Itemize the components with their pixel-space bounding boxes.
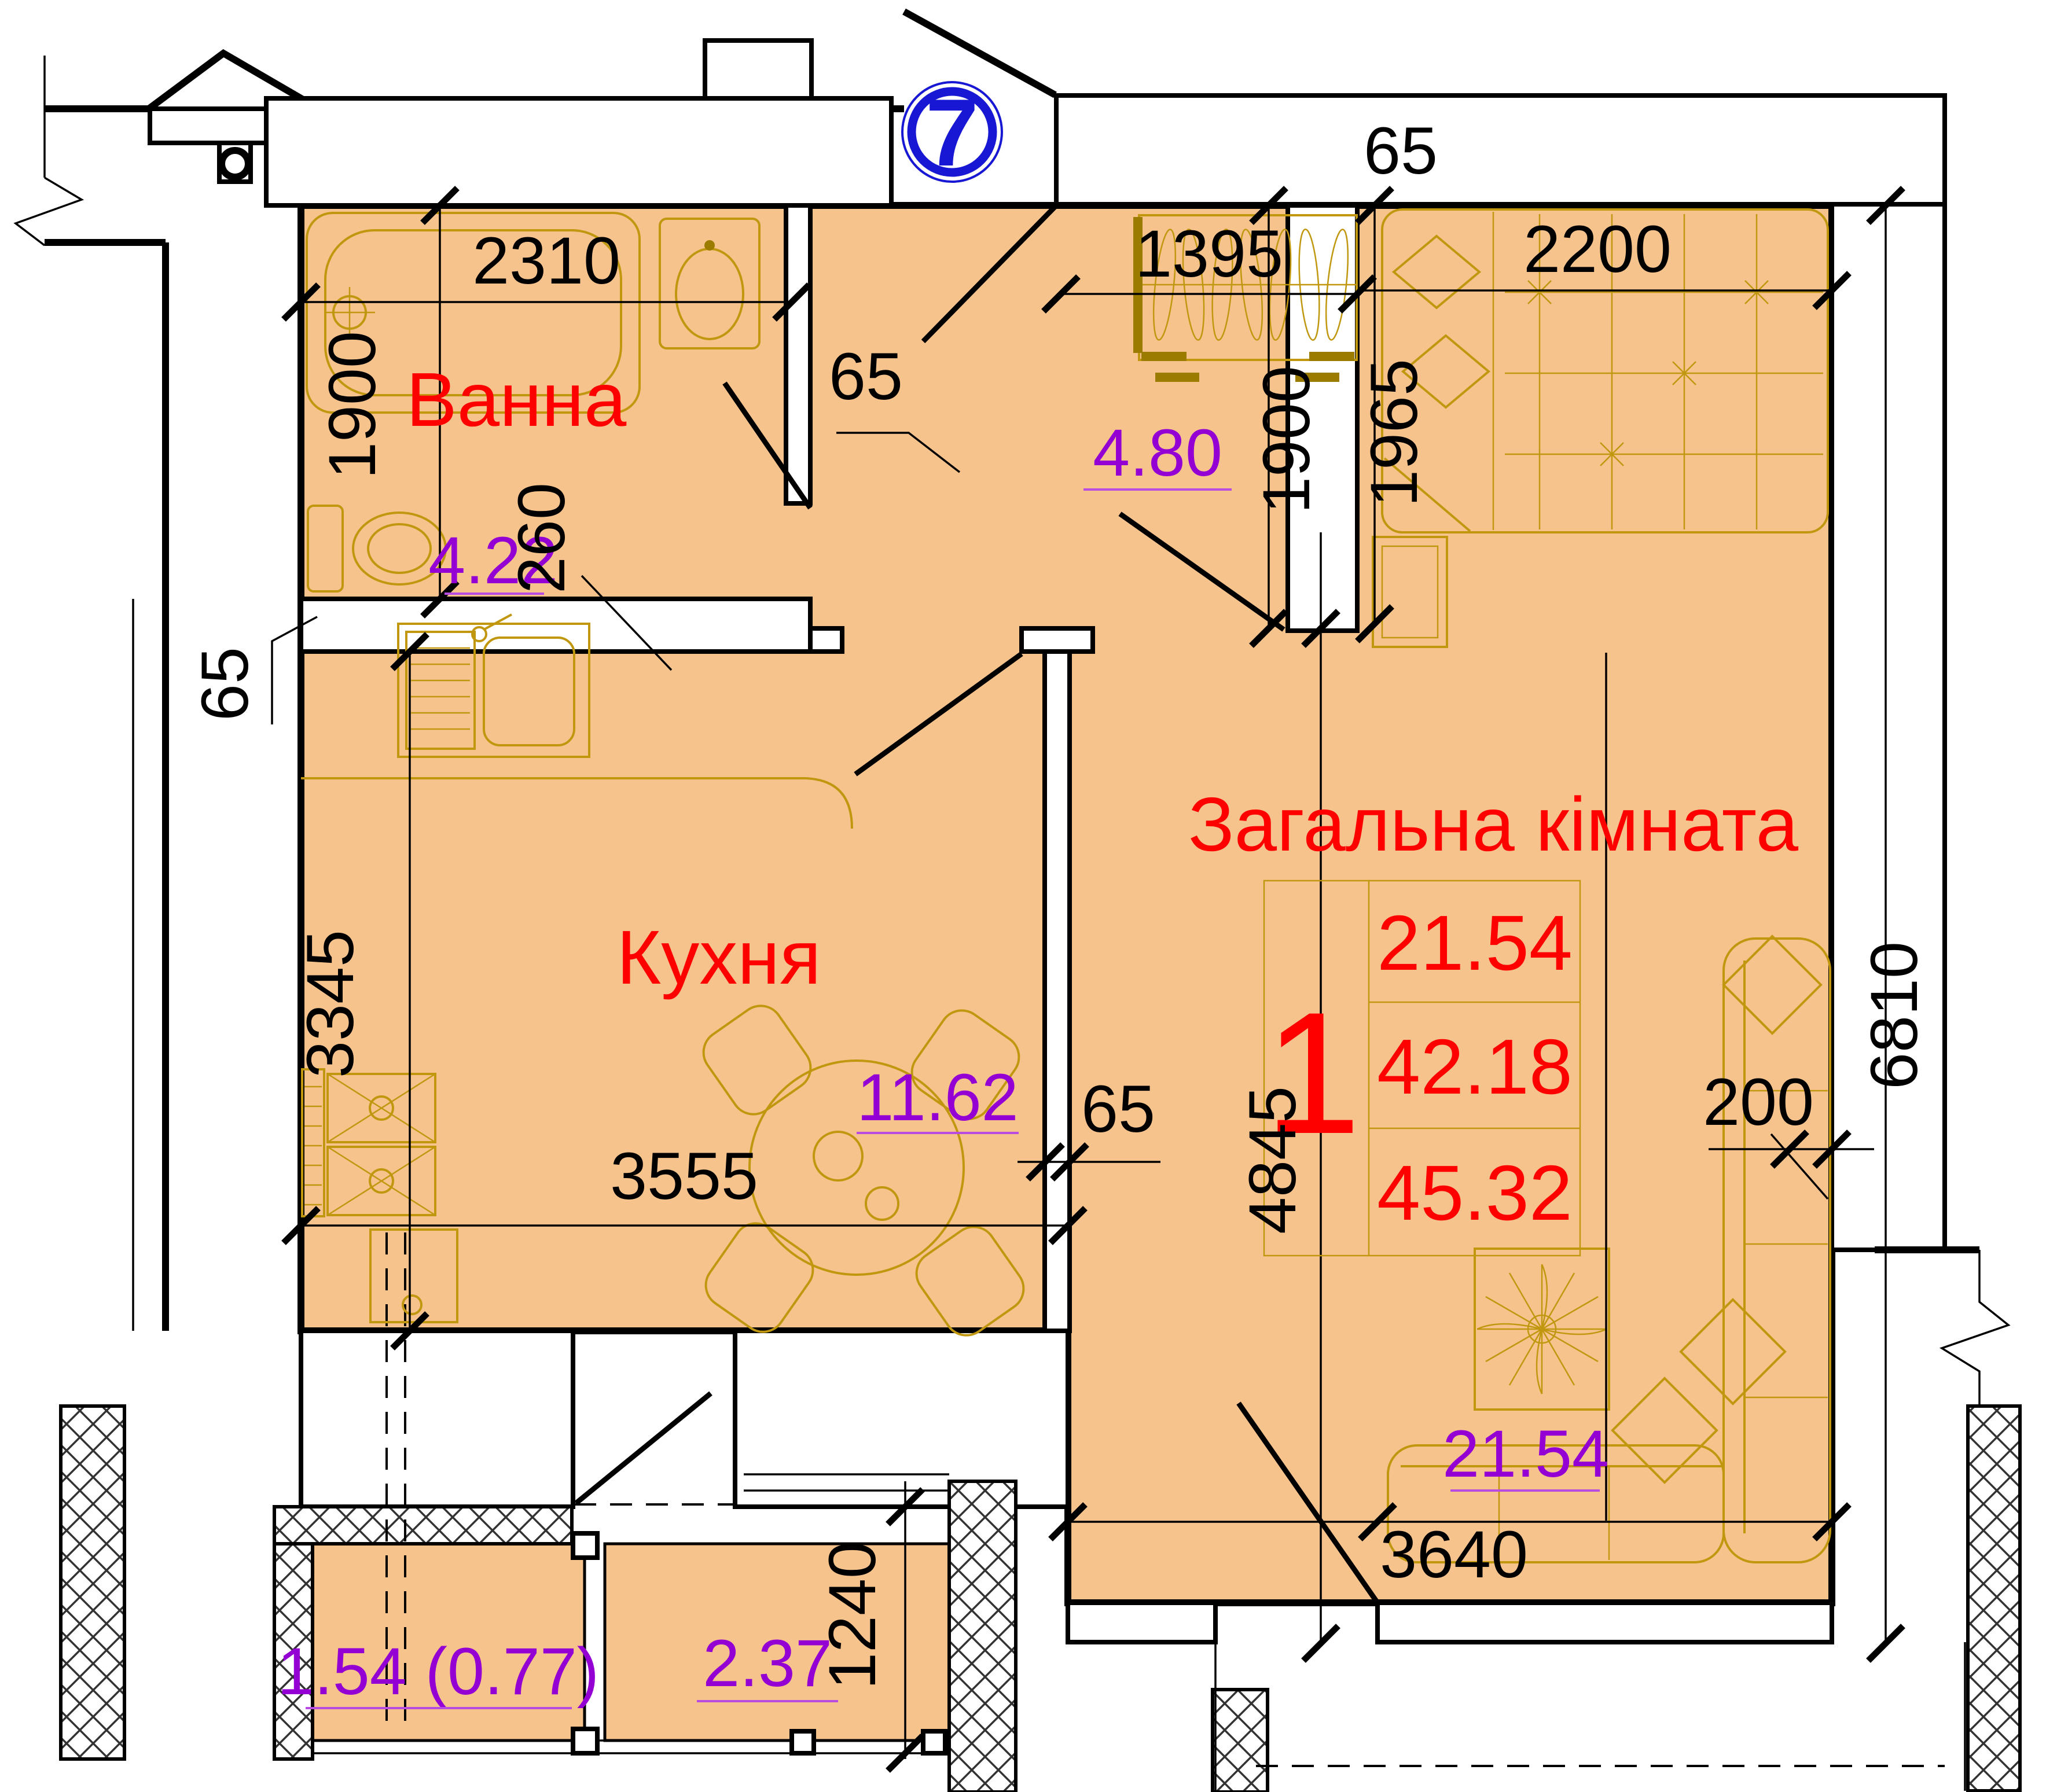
dim-bed-width: 2200 bbox=[1523, 212, 1672, 286]
post bbox=[923, 1731, 945, 1753]
balcony-left-area: 1.54 (0.77) bbox=[277, 1635, 599, 1709]
living-ext-wall-left bbox=[1068, 1603, 1215, 1642]
balcony-parapet-top bbox=[274, 1507, 572, 1544]
dim-mid-wall: 65 bbox=[1081, 1072, 1155, 1146]
dim-bath-width: 2310 bbox=[472, 224, 620, 298]
table-total-area: 45.32 bbox=[1377, 1149, 1573, 1237]
hall-area: 4.80 bbox=[1093, 416, 1222, 490]
dim-hall-wall: 65 bbox=[829, 340, 903, 414]
hall-bottom-stub bbox=[810, 628, 842, 652]
balcony-parapet-right bbox=[949, 1481, 1016, 1792]
dim-bath-height: 1900 bbox=[315, 331, 390, 479]
break-line-left bbox=[16, 178, 82, 245]
top-wall-left bbox=[266, 98, 891, 205]
bathroom-label: Ванна bbox=[406, 357, 627, 442]
dim-left-wall: 65 bbox=[188, 647, 262, 721]
washbasin-tap-icon bbox=[704, 240, 715, 251]
kitchen-area: 11.62 bbox=[857, 1061, 1018, 1135]
kitchen-wall-cap bbox=[1022, 628, 1093, 652]
dim-kitchen-width: 3555 bbox=[610, 1139, 758, 1213]
floor-plan-canvas: 7 bbox=[0, 0, 2068, 1792]
dim-total-height: 6810 bbox=[1857, 941, 1931, 1090]
kitchen-label: Кухня bbox=[616, 915, 821, 1000]
dim-wardrobe-width: 1395 bbox=[1135, 217, 1283, 291]
dim-bed-height: 1965 bbox=[1357, 359, 1431, 507]
bathroom-bottom-wall bbox=[301, 599, 810, 652]
dim-living-height: 4845 bbox=[1236, 1086, 1310, 1234]
living-area: 21.54 bbox=[1442, 1417, 1609, 1491]
kitchen-ext-wall-right bbox=[735, 1331, 1068, 1507]
living-ext-wall-right bbox=[1378, 1603, 1832, 1642]
neighbour-wall-left bbox=[61, 1406, 124, 1759]
lower-balcony-wall-left bbox=[1213, 1690, 1268, 1792]
neighbour-wall-right bbox=[1968, 1406, 2020, 1791]
post bbox=[573, 1729, 597, 1753]
bathroom-right-wall bbox=[786, 205, 810, 503]
dim-top-wall: 65 bbox=[1364, 114, 1438, 188]
balcony-right-area: 2.37 bbox=[703, 1627, 832, 1701]
apartment-marker: 7 bbox=[902, 79, 1002, 186]
dim-balcony-height: 1240 bbox=[816, 1541, 890, 1690]
kitchen-ext-wall-left bbox=[301, 1331, 573, 1507]
dim-hall-height: 1900 bbox=[1250, 366, 1324, 514]
dim-bath-door: 260 bbox=[505, 483, 579, 594]
table-living-area: 21.54 bbox=[1377, 899, 1573, 987]
apartment-number: 7 bbox=[925, 79, 979, 186]
post bbox=[792, 1731, 814, 1753]
balcony-door-leaf bbox=[576, 1393, 711, 1503]
top-wall-right bbox=[1056, 95, 1945, 204]
post bbox=[573, 1533, 597, 1558]
break-line-right bbox=[1942, 1250, 2008, 1406]
right-wall bbox=[1832, 204, 1945, 1250]
dim-sofa-offset: 200 bbox=[1703, 1065, 1814, 1139]
table-apartment-area: 42.18 bbox=[1377, 1023, 1573, 1110]
dim-kitchen-height: 3345 bbox=[293, 930, 368, 1078]
dim-living-width: 3640 bbox=[1380, 1518, 1528, 1592]
living-label: Загальна кімната bbox=[1188, 782, 1799, 867]
